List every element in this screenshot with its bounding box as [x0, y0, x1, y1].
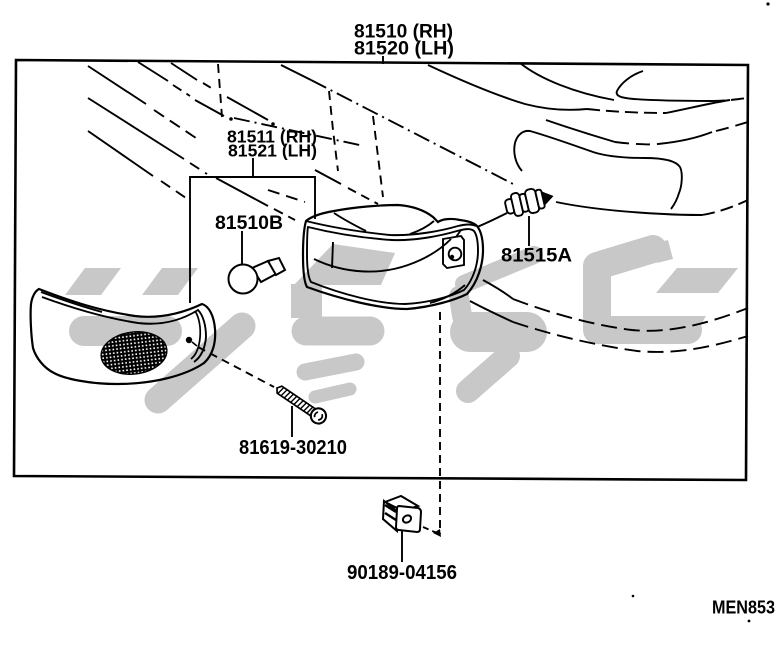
svg-text:81520 (LH): 81520 (LH)	[354, 38, 454, 60]
svg-text:81510B: 81510B	[215, 212, 283, 234]
svg-text:81515A: 81515A	[501, 246, 572, 267]
svg-text:90189-04156: 90189-04156	[347, 562, 457, 584]
svg-text:81619-30210: 81619-30210	[239, 437, 347, 459]
svg-text:MEN853: MEN853	[712, 597, 775, 618]
svg-text:81521 (LH): 81521 (LH)	[228, 141, 317, 161]
